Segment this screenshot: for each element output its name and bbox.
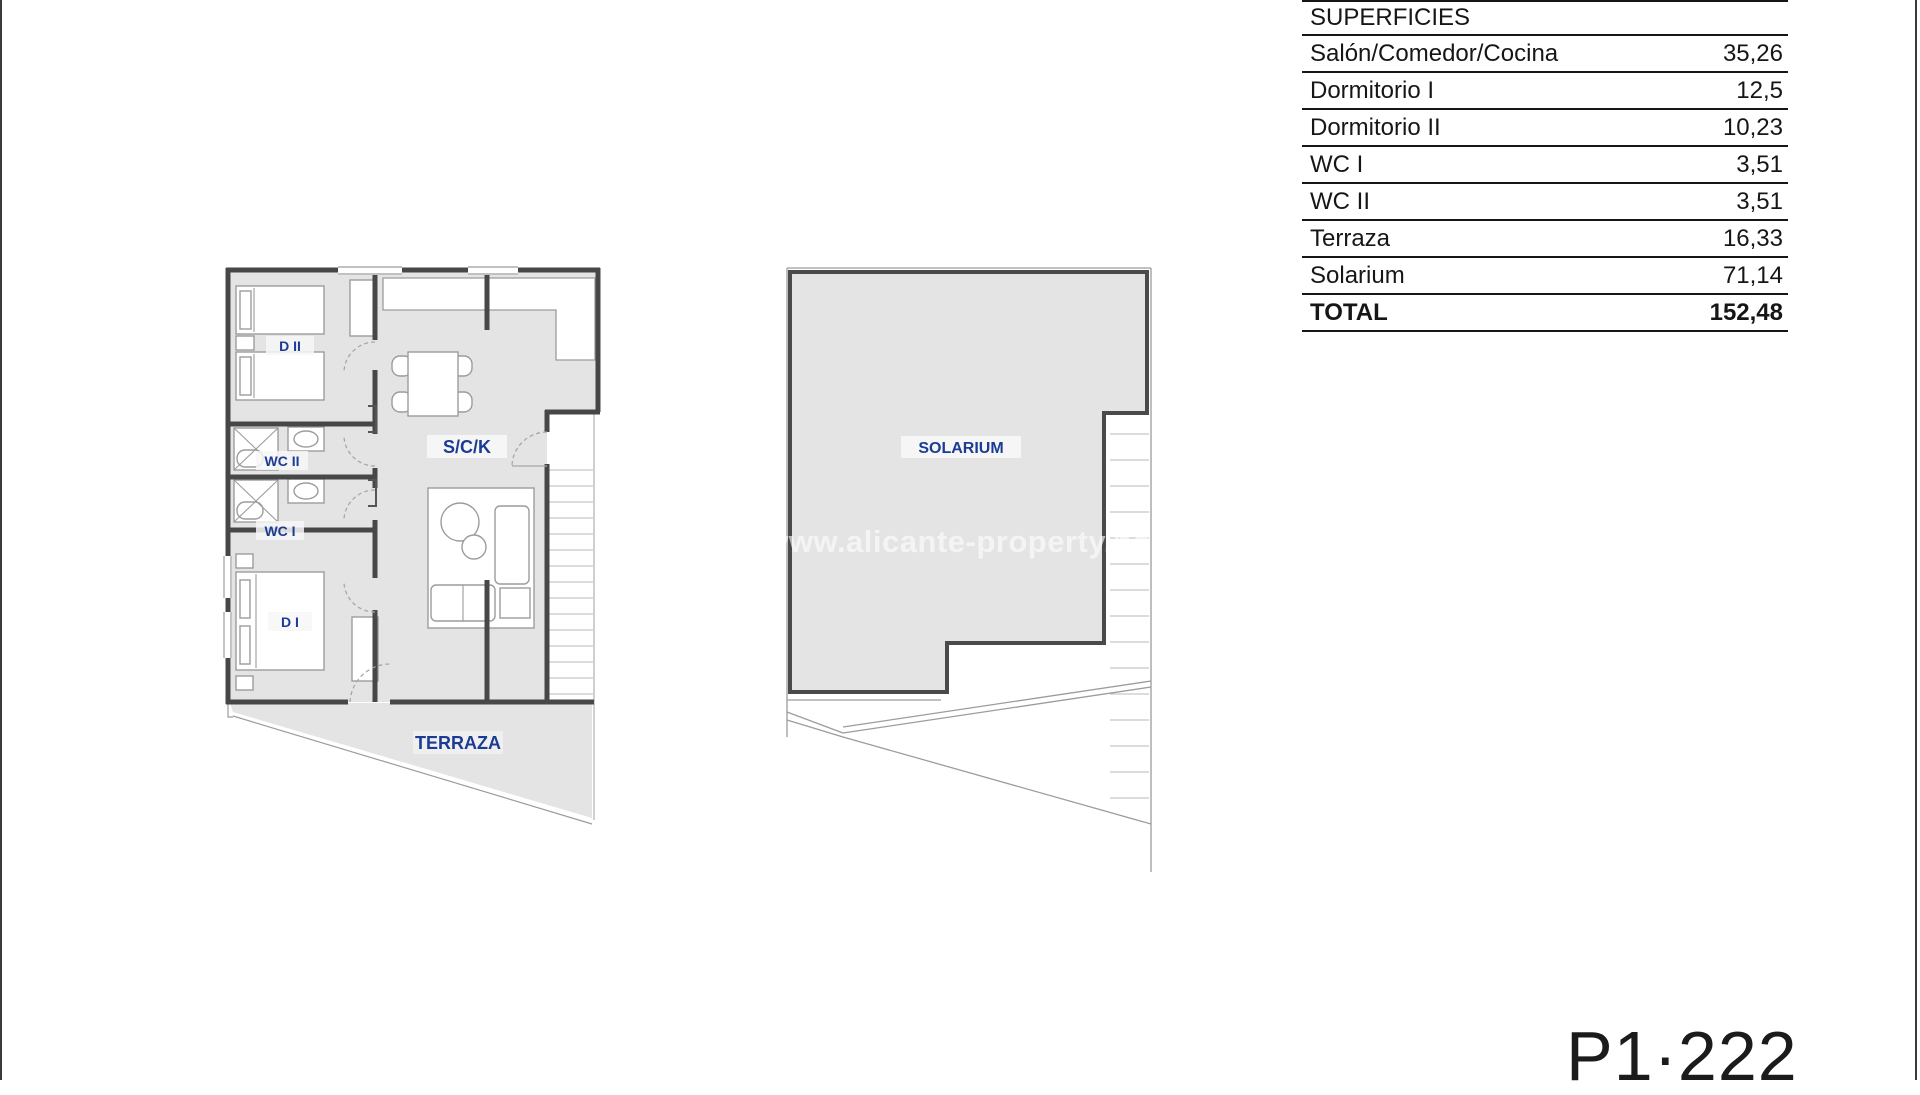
table-row: Dormitorio II 10,23 <box>1302 110 1788 147</box>
room-label-wc1: WC I <box>264 523 295 539</box>
row-label: Dormitorio I <box>1310 77 1434 105</box>
row-value: 10,23 <box>1723 114 1783 142</box>
total-label: TOTAL <box>1310 299 1388 327</box>
table-row: WC I 3,51 <box>1302 147 1788 184</box>
armchair-round-small <box>462 535 486 559</box>
floorplan-apartment: D II WC II WC I D I S/C/K TERRAZA <box>223 266 600 824</box>
row-label: Terraza <box>1310 225 1390 253</box>
row-label: WC II <box>1310 188 1370 216</box>
bed-single-1-pillow <box>240 291 251 329</box>
total-value: 152,48 <box>1710 299 1783 327</box>
surfaces-table: SUPERFICIES Salón/Comedor/Cocina 35,26 D… <box>1302 0 1788 332</box>
nightstand-d1-top <box>236 554 253 568</box>
table-row: WC II 3,51 <box>1302 184 1788 221</box>
room-label-d2: D II <box>279 338 301 354</box>
terrace-floor <box>230 703 592 818</box>
dining-table <box>408 352 458 416</box>
sofa-vertical <box>495 506 529 584</box>
table-row: Terraza 16,33 <box>1302 221 1788 258</box>
side-table <box>500 588 530 618</box>
room-label-wc2: WC II <box>265 453 300 469</box>
watermark-text: www.alicante-property.no <box>763 524 1152 559</box>
table-total-row: TOTAL 152,48 <box>1302 295 1788 332</box>
stairs-solarium <box>1110 434 1149 798</box>
row-value: 3,51 <box>1736 188 1783 216</box>
row-value: 71,14 <box>1723 262 1783 290</box>
bed-single-2-pillow <box>240 357 251 395</box>
sheet-code: P1·222 <box>1566 1021 1798 1091</box>
solarium-floor <box>790 272 1147 692</box>
table-row: Dormitorio I 12,5 <box>1302 73 1788 110</box>
row-value: 12,5 <box>1736 77 1783 105</box>
sheet-border-left <box>0 0 2 1080</box>
room-label-solarium: SOLARIUM <box>918 440 1003 457</box>
table-row: Solarium 71,14 <box>1302 258 1788 295</box>
table-title-text: SUPERFICIES <box>1310 4 1470 32</box>
row-value: 35,26 <box>1723 40 1783 68</box>
table-row: Salón/Comedor/Cocina 35,26 <box>1302 36 1788 73</box>
floorplan-solarium: www.alicante-property.no SOLARIUM <box>763 268 1152 872</box>
surfaces-table-title: SUPERFICIES <box>1302 2 1788 36</box>
nightstand-d2 <box>236 336 254 350</box>
row-label: Solarium <box>1310 262 1405 290</box>
row-value: 3,51 <box>1736 151 1783 179</box>
row-label: Salón/Comedor/Cocina <box>1310 40 1558 68</box>
row-label: Dormitorio II <box>1310 114 1441 142</box>
nightstand-d1-bottom <box>236 676 253 690</box>
room-label-sck: S/C/K <box>443 437 491 457</box>
bed-double-pillow-1 <box>240 580 250 618</box>
bed-double-pillow-2 <box>240 626 250 664</box>
sheet-border-right <box>1915 0 1917 1080</box>
room-label-terraza: TERRAZA <box>415 733 501 753</box>
sink-basin-wc1 <box>294 483 318 499</box>
sink-basin-wc2 <box>294 431 318 447</box>
row-value: 16,33 <box>1723 225 1783 253</box>
row-label: WC I <box>1310 151 1363 179</box>
room-label-d1: D I <box>281 614 299 630</box>
wardrobe-d2 <box>350 280 376 336</box>
